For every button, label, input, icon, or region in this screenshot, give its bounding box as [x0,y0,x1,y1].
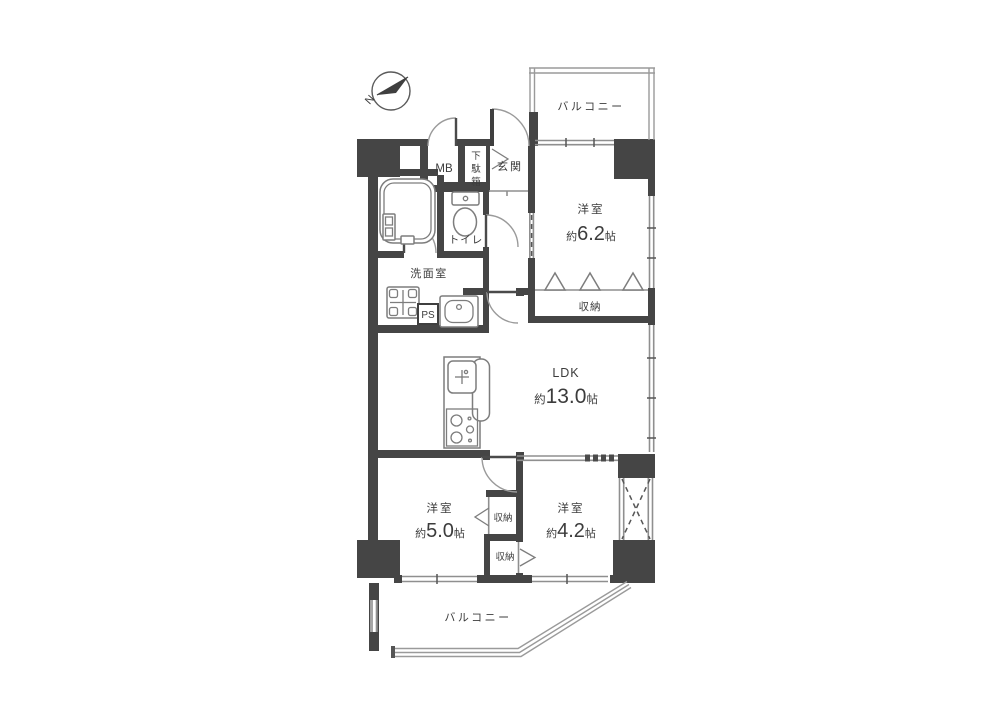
window-bedroom1-balcony [535,138,614,147]
ldk-bedroom3-sliding-door [517,456,618,460]
closet-bedroom1-label: 収納 [579,300,602,313]
ldk-size: 約13.0帖 [534,385,598,408]
washing-machine-pan [387,287,419,318]
bedroom3-size: 約4.2帖 [546,520,596,542]
north-arrow-icon: N [363,72,410,110]
bedroom3-label: 洋室 約4.2帖 [546,501,596,542]
closet-lower-door [519,542,536,573]
entrance-step-line [489,191,528,196]
compass-label: N [363,93,377,107]
bath-control-panel [383,214,395,240]
balcony-left-slit-window [371,600,378,632]
shoe-cabinet-label: 下 駄 箱 [471,151,481,188]
kitchen-counter [444,357,490,448]
shoe-cabinet-char1: 下 [471,151,481,162]
meter-box-door [428,118,456,146]
bedroom1-sliding-door [528,213,535,258]
closet-upper-door [475,497,489,534]
entrance-label: 玄関 [497,159,523,173]
bedroom1-label: 洋室 約6.2帖 [566,202,616,245]
balcony-bottom-label: バルコニー [444,611,511,624]
bedroom1-name: 洋室 [578,202,605,216]
window-bedroom2-bottom [402,574,477,584]
window-bedroom1-right [647,196,656,288]
void-area [620,478,653,540]
washroom-label: 洗面室 [410,266,448,280]
vanity-sink [440,296,478,327]
entrance-door [492,109,529,146]
toilet [452,192,479,236]
toilet-door [486,215,518,247]
closet-bedroom1-folding-doors [535,273,648,290]
meter-box-label: MB [435,163,453,175]
shoe-cabinet-char2: 駄 [471,163,481,175]
window-ldk-right [647,325,656,452]
hall-ldk-door [487,292,518,323]
bedroom3-name: 洋室 [558,501,585,515]
pipe-space-label: PS [421,310,435,321]
closet-lower-label: 収納 [495,551,514,563]
bedroom1-size: 約6.2帖 [566,223,616,245]
balcony-top-label: バルコニー [557,100,624,113]
floor-plan-canvas: N [0,0,1000,707]
bedroom2-size: 約5.0帖 [415,520,465,542]
shoe-cabinet-char3: 箱 [471,176,481,188]
window-bedroom3-bottom [532,574,608,584]
closet-upper-label: 収納 [493,512,512,524]
bedroom2-name: 洋室 [427,501,454,515]
toilet-label: トイレ [449,234,484,246]
ldk-bedroom2-door [482,457,517,492]
ldk-label: LDK 約13.0帖 [534,366,598,408]
bedroom2-label: 洋室 約5.0帖 [415,501,465,542]
ldk-name: LDK [552,366,579,380]
